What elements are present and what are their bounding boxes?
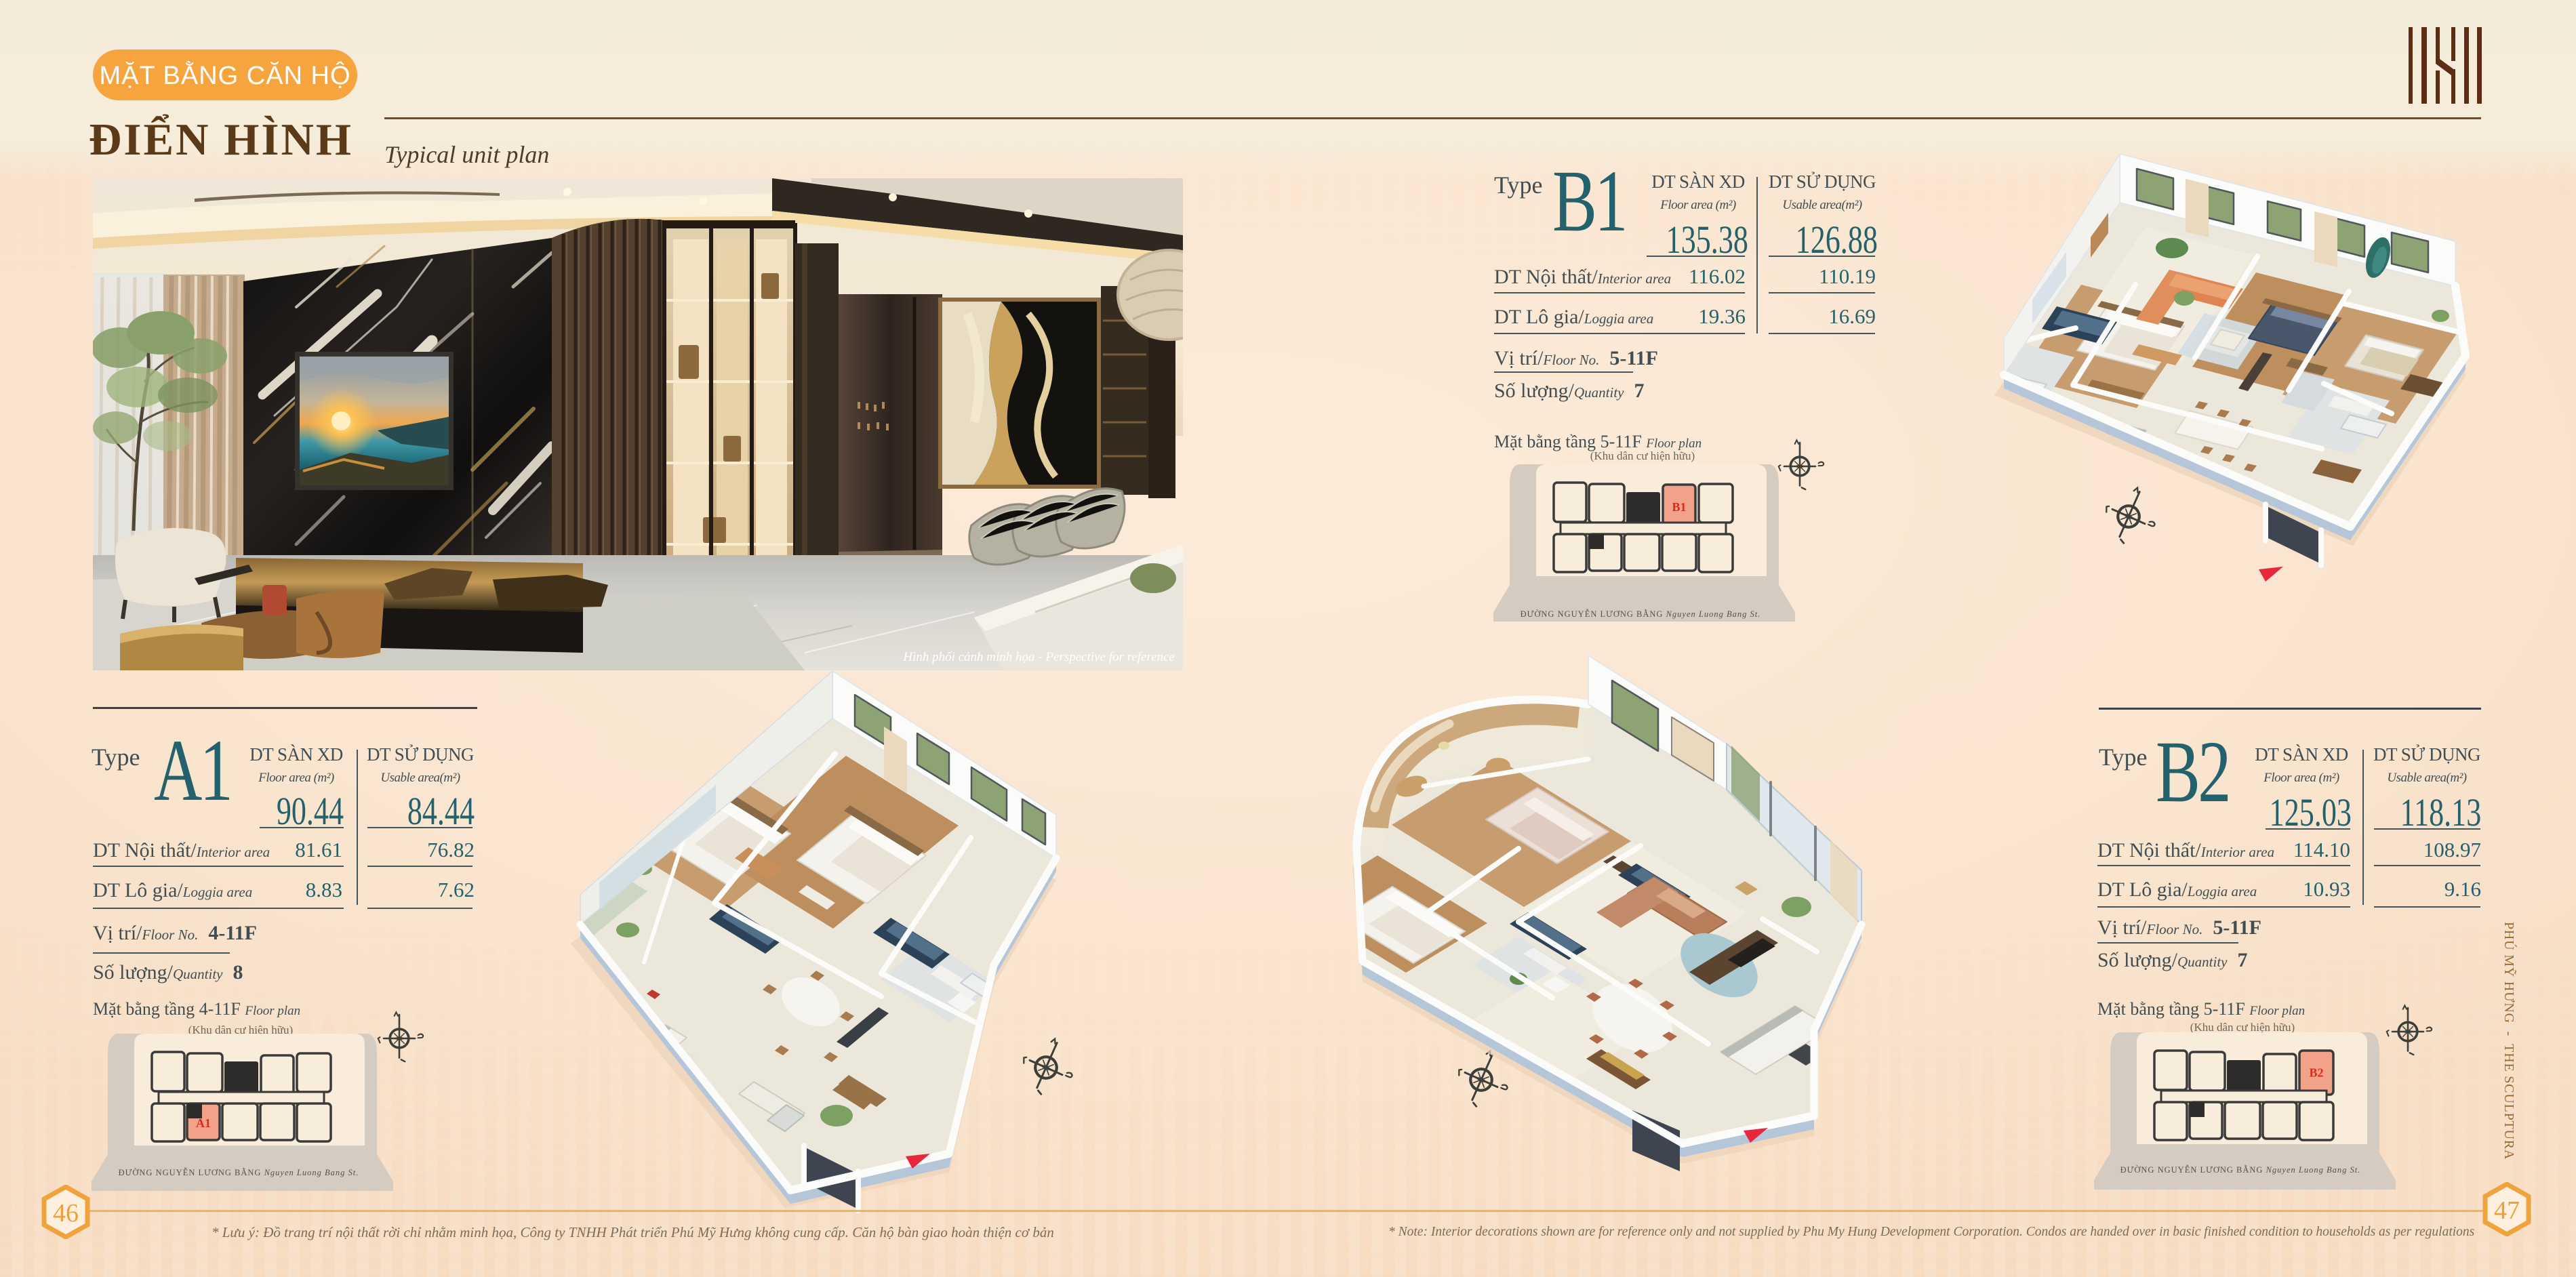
svg-text:ĐƯỜNG NGUYỄN LƯƠNG BẰNG Nguyen: ĐƯỜNG NGUYỄN LƯƠNG BẰNG Nguyen Luong Ban… — [2120, 1164, 2361, 1175]
svg-text:46: 46 — [53, 1199, 79, 1228]
svg-text:(Khu dân cư hiện hữu): (Khu dân cư hiện hữu) — [2190, 1021, 2295, 1034]
svg-text:(Khu dân cư hiện hữu): (Khu dân cư hiện hữu) — [1590, 449, 1695, 462]
svg-text:47: 47 — [2494, 1196, 2520, 1225]
svg-text:ĐƯỜNG NGUYỄN LƯƠNG BẰNG Nguyen: ĐƯỜNG NGUYỄN LƯƠNG BẰNG Nguyen Luong Ban… — [119, 1167, 359, 1177]
svg-text:ĐƯỜNG NGUYỄN LƯƠNG BẰNG Nguyen: ĐƯỜNG NGUYỄN LƯƠNG BẰNG Nguyen Luong Ban… — [1521, 609, 1761, 619]
svg-text:B2: B2 — [2309, 1066, 2323, 1080]
svg-text:B1: B1 — [1672, 500, 1686, 514]
